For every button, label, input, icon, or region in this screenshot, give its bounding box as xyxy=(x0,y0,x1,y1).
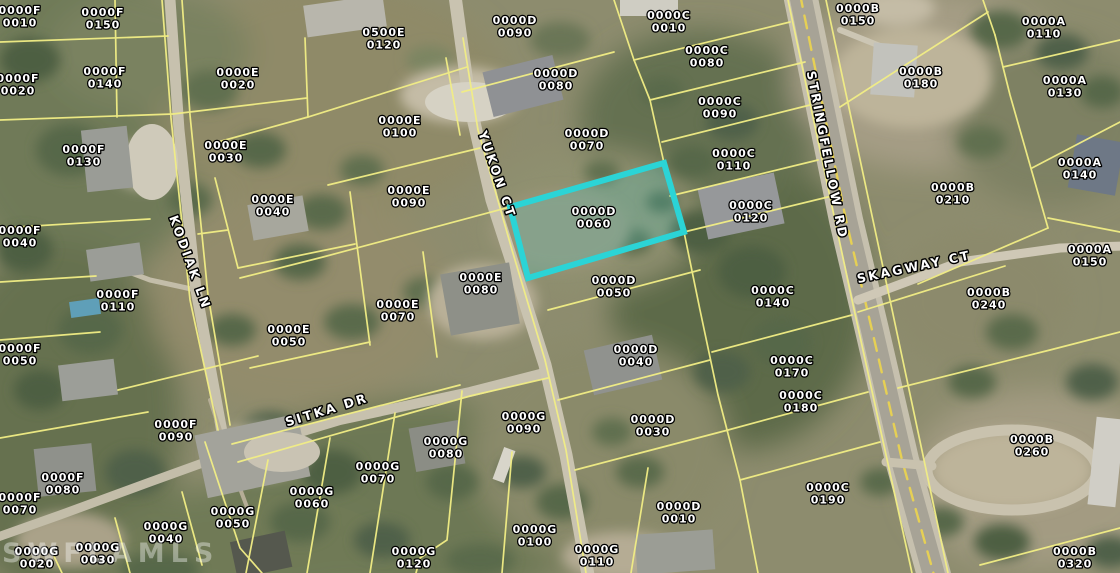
aerial-parcel-map: 0000F00100000F01500500E01200000D00900000… xyxy=(0,0,1120,573)
parcel-label-0000C-0090: 0000C0090 xyxy=(698,95,742,121)
parcel-label-0000F-0040: 0000F0040 xyxy=(0,224,42,250)
parcel-label-0000D-0070: 0000D0070 xyxy=(565,127,610,153)
parcel-label-0000C-0120: 0000C0120 xyxy=(729,199,773,225)
parcel-label-0000D-0010: 0000D0010 xyxy=(657,500,702,526)
parcel-label-0000F-0150: 0000F0150 xyxy=(81,6,124,32)
parcel-label-0000E-0070: 0000E0070 xyxy=(376,298,419,324)
parcel-label-0000A-0110: 0000A0110 xyxy=(1022,15,1066,41)
parcel-label-0000C-0080: 0000C0080 xyxy=(685,44,729,70)
parcel-label-0000B-0210: 0000B0210 xyxy=(931,181,975,207)
parcel-label-0000G-0060: 0000G0060 xyxy=(290,485,335,511)
map-canvas[interactable]: 0000F00100000F01500500E01200000D00900000… xyxy=(0,0,1120,573)
parcel-label-0000E-0100: 0000E0100 xyxy=(378,114,421,140)
parcel-label-0000F-0130: 0000F0130 xyxy=(62,143,105,169)
parcel-label-0000E-0020: 0000E0020 xyxy=(216,66,259,92)
parcel-label-0000D-0080: 0000D0080 xyxy=(534,67,579,93)
parcel-label-0000F-0140: 0000F0140 xyxy=(83,65,126,91)
parcel-label-0000B-0320: 0000B0320 xyxy=(1053,545,1097,571)
parcel-label-0000D-0060: 0000D0060 xyxy=(572,205,617,231)
parcel-label-0000A-0150: 0000A0150 xyxy=(1068,243,1112,269)
parcel-label-0000E-0030: 0000E0030 xyxy=(204,139,247,165)
parcel-label-0000F-0070: 0000F0070 xyxy=(0,491,42,517)
parcel-label-0000A-0130: 0000A0130 xyxy=(1043,74,1087,100)
parcel-label-0000C-0010: 0000C0010 xyxy=(647,9,691,35)
parcel-label-0000C-0170: 0000C0170 xyxy=(770,354,814,380)
parcel-label-0000D-0040: 0000D0040 xyxy=(614,343,659,369)
parcel-label-0000B-0150: 0000B0150 xyxy=(836,2,880,28)
parcel-label-0000G-0120: 0000G0120 xyxy=(392,545,437,571)
parcel-label-0000E-0050: 0000E0050 xyxy=(267,323,310,349)
parcel-label-0000G-0080: 0000G0080 xyxy=(424,435,469,461)
parcel-label-0000G-0110: 0000G0110 xyxy=(575,543,620,569)
parcel-label-0000D-0030: 0000D0030 xyxy=(631,413,676,439)
parcel-label-0000C-0180: 0000C0180 xyxy=(779,389,823,415)
parcel-label-0000G-0090: 0000G0090 xyxy=(502,410,547,436)
parcel-label-0000B-0260: 0000B0260 xyxy=(1010,433,1054,459)
parcel-label-0000C-0140: 0000C0140 xyxy=(751,284,795,310)
parcel-label-0000G-0050: 0000G0050 xyxy=(211,505,256,531)
parcel-label-0000F-0090: 0000F0090 xyxy=(154,418,197,444)
parcel-label-0000F-0020: 0000F0020 xyxy=(0,72,40,98)
parcel-label-0000A-0140: 0000A0140 xyxy=(1058,156,1102,182)
parcel-label-0000C-0190: 0000C0190 xyxy=(806,481,850,507)
parcel-label-0000B-0180: 0000B0180 xyxy=(899,65,943,91)
parcel-label-0000F-0050: 0000F0050 xyxy=(0,342,42,368)
parcel-label-0000D-0090: 0000D0090 xyxy=(493,14,538,40)
parcel-label-0000G-0100: 0000G0100 xyxy=(513,523,558,549)
parcel-label-0000G-0070: 0000G0070 xyxy=(356,460,401,486)
parcel-label-0500E-0120: 0500E0120 xyxy=(362,26,405,52)
mls-watermark: SWFLAMLS xyxy=(2,538,219,569)
parcel-label-0000B-0240: 0000B0240 xyxy=(967,286,1011,312)
parcel-label-0000E-0040: 0000E0040 xyxy=(251,193,294,219)
parcel-label-0000F-0110: 0000F0110 xyxy=(96,288,139,314)
parcel-label-0000C-0110: 0000C0110 xyxy=(712,147,756,173)
parcel-label-0000F-0080: 0000F0080 xyxy=(41,471,84,497)
parcel-label-0000E-0080: 0000E0080 xyxy=(459,271,502,297)
parcel-label-0000D-0050: 0000D0050 xyxy=(592,274,637,300)
parcel-label-0000F-0010: 0000F0010 xyxy=(0,4,42,30)
parcel-label-0000E-0090: 0000E0090 xyxy=(387,184,430,210)
